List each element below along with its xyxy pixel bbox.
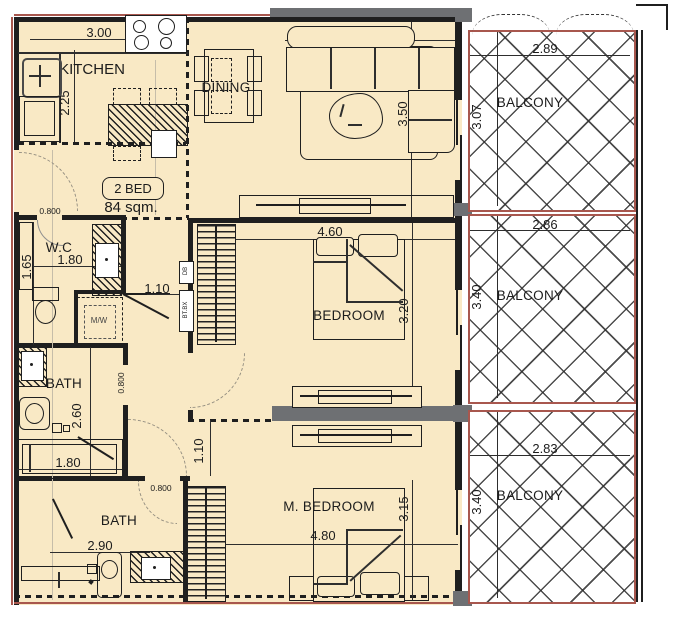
bath2-door-dim: 0.800 bbox=[146, 483, 176, 493]
stove-burner-2 bbox=[158, 18, 175, 35]
dining-chair-right-2 bbox=[247, 90, 262, 116]
bath1-basin-dot bbox=[30, 363, 33, 366]
balcony-2-area bbox=[468, 214, 636, 404]
bath1-accessory-1 bbox=[52, 423, 62, 433]
bath1-accessory-2 bbox=[63, 425, 70, 432]
sliding-door-3a bbox=[456, 490, 458, 535]
island-stool-1 bbox=[113, 88, 141, 105]
tv-console-master-box bbox=[318, 429, 392, 443]
master-corridor-width-dim: 1.10 bbox=[192, 435, 204, 467]
sliding-door-1b bbox=[460, 135, 462, 180]
exterior-red-bottom bbox=[14, 602, 464, 604]
kitchen-width-dim: 3.00 bbox=[80, 25, 118, 39]
sofa-seat-divider-1 bbox=[330, 48, 332, 89]
wardrobe-bedroom bbox=[197, 224, 236, 345]
sofa-chaise bbox=[408, 90, 455, 153]
balcony-3-area bbox=[468, 410, 636, 604]
wardrobe-master-divider bbox=[205, 487, 207, 599]
floor-plan: 2.89 3.07 BALCONY 2.86 3.40 BALCONY 2.83… bbox=[0, 0, 692, 622]
balcony-2-depth-dim: 3.40 bbox=[469, 279, 483, 315]
dining-chair-inner-1 bbox=[211, 58, 232, 82]
balcony-1-width-dim: 2.89 bbox=[520, 41, 570, 55]
dining-chair-left-1 bbox=[194, 56, 209, 82]
bath2-width-dim: 2.90 bbox=[80, 538, 120, 553]
open-above-arc-2 bbox=[556, 14, 634, 35]
grid-line-v1 bbox=[52, 150, 53, 600]
bed-master-blanket-edge bbox=[346, 529, 403, 531]
sliding-door-3b bbox=[460, 525, 462, 570]
wc-shelf bbox=[19, 222, 33, 290]
bath1-tub-inner bbox=[22, 444, 117, 474]
bed-master-sheet-line-h bbox=[313, 583, 347, 585]
db-panel-label: DB bbox=[181, 259, 191, 283]
balcony-1-depth-dim: 3.07 bbox=[469, 99, 483, 135]
open-above-arc-1 bbox=[472, 14, 550, 35]
wall-wc-top-a bbox=[14, 215, 37, 220]
fridge-inner bbox=[24, 101, 55, 136]
wc-door-dim: 0.800 bbox=[36, 206, 64, 216]
unit-area-label: 84 sqm. bbox=[96, 199, 166, 216]
balcony-3-dim-line-v bbox=[497, 412, 498, 598]
tv-living bbox=[256, 204, 406, 206]
wc-label: W.C bbox=[42, 240, 76, 255]
corridor-dashed-line bbox=[188, 419, 272, 422]
island-stool-3 bbox=[113, 146, 141, 161]
wc-toilet-bowl bbox=[35, 300, 56, 324]
balcony-3-depth-dim: 3.40 bbox=[469, 484, 483, 520]
kitchen-sink-cross-h bbox=[29, 75, 51, 77]
bath1-door-dim: 0.800 bbox=[116, 368, 126, 398]
slab-mid-bar bbox=[272, 406, 462, 421]
wc-toilet-tank bbox=[32, 287, 59, 301]
coffee-table-blob bbox=[329, 93, 383, 139]
bedroom-dim-line-v bbox=[412, 223, 413, 405]
bath1-label: BATH bbox=[42, 376, 86, 391]
bath1-tub-divider bbox=[29, 444, 31, 472]
kitchen-label: KITCHEN bbox=[55, 61, 129, 77]
parapet-corner-h bbox=[636, 4, 667, 6]
sliding-door-2b bbox=[460, 325, 462, 370]
bed-master-sheet-line-v bbox=[346, 530, 348, 585]
balcony-3-label: BALCONY bbox=[494, 488, 566, 503]
balcony-2-label: BALCONY bbox=[494, 288, 566, 303]
balcony-3-width-dim: 2.83 bbox=[520, 441, 570, 455]
balcony-2-width-dim: 2.86 bbox=[520, 217, 570, 231]
wall-right-seg1 bbox=[455, 17, 462, 100]
wall-top bbox=[14, 17, 462, 22]
bed-blanket-edge bbox=[346, 301, 403, 303]
dining-chair-inner-2 bbox=[211, 90, 232, 114]
dining-chair-right-1 bbox=[247, 56, 262, 82]
wc-dim-line-v bbox=[33, 222, 34, 345]
wall-bedroom-left-upper bbox=[188, 218, 193, 353]
divider-hall-dashed bbox=[121, 217, 188, 220]
sofa-seat-divider-2 bbox=[374, 48, 376, 89]
wc-basin-dot bbox=[105, 258, 108, 261]
sofa-seats bbox=[286, 47, 455, 92]
sofa-chaise-divider bbox=[409, 119, 452, 121]
bath2-tub-stem bbox=[58, 572, 60, 588]
balcony-2-dim-line-v bbox=[497, 216, 498, 398]
bed-pillow-1 bbox=[316, 237, 354, 256]
bed-sheet-line-v bbox=[346, 239, 348, 303]
nightstand-left bbox=[289, 576, 314, 601]
bath2-label: BATH bbox=[96, 513, 142, 528]
wall-right-seg2 bbox=[455, 180, 462, 290]
blob-accent-2 bbox=[348, 124, 362, 126]
tv-master bbox=[300, 434, 412, 436]
stove-burner-3 bbox=[134, 35, 149, 50]
unit-type-badge: 2 BED bbox=[102, 177, 164, 200]
bath1-basin bbox=[21, 351, 44, 381]
bed-master-pillow-2 bbox=[360, 572, 400, 595]
bath1-depth-dim: 2.60 bbox=[69, 398, 83, 434]
stove-burner-1 bbox=[133, 20, 146, 33]
bath2-basin bbox=[141, 557, 171, 580]
parapet-corner-v bbox=[666, 4, 668, 30]
bath2-basin-dot bbox=[153, 566, 156, 569]
kitchen-sink bbox=[22, 58, 62, 98]
island-sink bbox=[151, 130, 177, 158]
bed-pillow-2 bbox=[358, 234, 398, 257]
bed-sheet-line-h bbox=[313, 261, 347, 263]
tv-console-bedroom-box bbox=[318, 390, 392, 404]
column-block-1 bbox=[455, 8, 472, 22]
balcony-1-label: BALCONY bbox=[494, 95, 566, 110]
wardrobe-bedroom-divider bbox=[215, 225, 217, 342]
balcony-1-area bbox=[468, 30, 636, 212]
island-stool-2 bbox=[149, 88, 177, 105]
exterior-red-left bbox=[11, 17, 13, 605]
wall-living-bedroom bbox=[188, 218, 462, 223]
dining-chair-left-2 bbox=[194, 90, 209, 116]
balcony-1-dim-line-v bbox=[497, 32, 498, 206]
bath1-toilet-bowl bbox=[25, 403, 44, 424]
bath2-toilet-bowl bbox=[101, 560, 118, 579]
tv-console-living-box bbox=[299, 198, 371, 214]
master-corridor-dim-line bbox=[210, 420, 211, 476]
bath2-accessory-1 bbox=[87, 564, 97, 574]
wall-bath1-right-a bbox=[123, 343, 128, 365]
tv-bedroom bbox=[300, 395, 412, 397]
telecom-box-label: BT.BX bbox=[181, 295, 191, 325]
sofa-back bbox=[287, 26, 415, 49]
wall-right-seg3 bbox=[455, 370, 462, 490]
hall-width-dim: 1.10 bbox=[141, 282, 173, 294]
washer-label: M/W bbox=[79, 315, 119, 327]
balustrade-line-2 bbox=[641, 30, 643, 602]
nightstand-right bbox=[404, 576, 429, 601]
wardrobe-master bbox=[187, 486, 226, 602]
sliding-door-2a bbox=[456, 290, 458, 335]
sofa-seat-divider-3 bbox=[418, 48, 420, 89]
balustrade-line-1 bbox=[636, 30, 638, 602]
sliding-door-1a bbox=[456, 100, 458, 145]
stove-burner-4 bbox=[160, 37, 172, 49]
